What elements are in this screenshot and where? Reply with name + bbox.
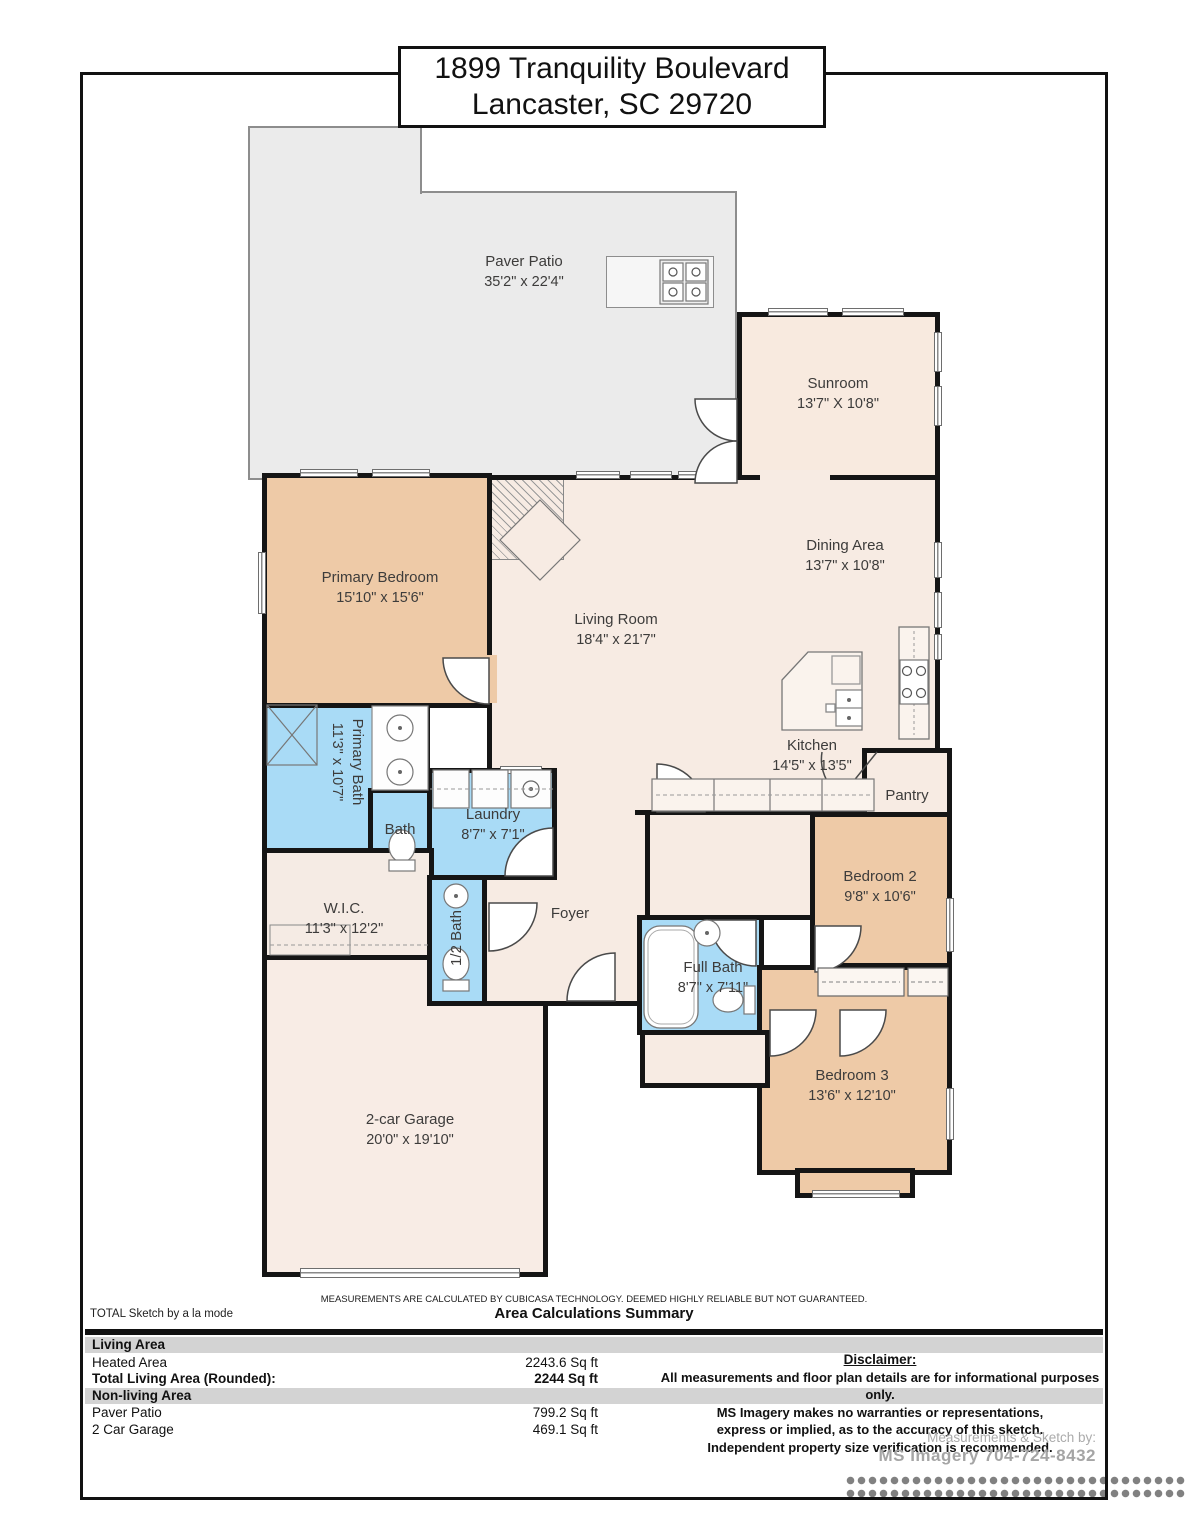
row-label: Total Living Area (Rounded): [92,1371,276,1387]
room-label-half-bath: 1/2 Bath [447,910,467,966]
window [300,469,358,477]
room-label-dining: Dining Area13'7" x 10'8" [805,536,885,576]
room-label-living: Living Room18'4" x 21'7" [574,610,657,650]
disclaimer-title: Disclaimer: [655,1351,1105,1369]
window [678,471,723,479]
window [946,1088,954,1140]
window [842,308,904,316]
disclaimer-line: All measurements and floor plan details … [655,1369,1105,1404]
room-pantry [862,748,952,817]
row-label: 2 Car Garage [92,1422,174,1438]
window [258,552,266,614]
room-label-sunroom: Sunroom13'7" X 10'8" [797,374,879,414]
window [934,332,942,372]
window [576,471,620,479]
window [934,542,942,578]
room-label-kitchen: Kitchen14'5" x 13'5" [772,736,852,776]
entry-porch [640,1030,770,1088]
row-value: 469.1 Sq ft [398,1422,598,1438]
window [768,308,828,316]
credit-name: MS Imagery 704-724-8432 [878,1446,1096,1466]
summary-title: Area Calculations Summary [85,1305,1103,1322]
grill-table [606,256,714,308]
window [934,634,942,660]
room-label-full-bath: Full Bath8'7" x 7'11" [678,958,748,998]
room-label-primary-bath: Primary Bath11'3" x 10'7" [327,719,367,806]
room-label-laundry: Laundry8'7" x 7'1" [461,805,524,845]
row-label: Heated Area [92,1355,167,1371]
room-hall [645,810,815,920]
room-paver-patio [248,126,422,480]
room-label-bedroom-3: Bedroom 313'6" x 12'10" [808,1066,896,1106]
room-label-paver-patio: Paver Patio35'2" x 22'4" [484,252,564,292]
window [934,386,942,426]
floor-plan-page: Paver Patio35'2" x 22'4" Sunroom13'7" X … [0,0,1187,1536]
row-value: 2243.6 Sq ft [398,1355,598,1371]
room-label-bedroom-2: Bedroom 29'8" x 10'6" [843,867,916,907]
row-label: Paver Patio [92,1405,162,1421]
credit-label: Measurements & Sketch by: [927,1430,1096,1445]
room-label-bath: Bath [385,820,416,840]
window [812,1190,900,1198]
address-title-box: 1899 Tranquility Boulevard Lancaster, SC… [398,46,826,128]
window [500,766,542,774]
stairs-hatch [492,480,564,560]
garage-door [300,1268,520,1278]
address-line-2: Lancaster, SC 29720 [401,87,823,123]
measurement-note: MEASUREMENTS ARE CALCULATED BY CUBICASA … [85,1294,1103,1305]
room-paver-patio [420,191,737,480]
disclaimer-line: MS Imagery makes no warranties or repres… [655,1404,1105,1422]
room-label-garage: 2-car Garage20'0" x 19'10" [366,1110,454,1150]
window [946,898,954,952]
divider-bar [85,1329,1103,1335]
window [934,592,942,628]
window [372,469,430,477]
row-value: 2244 Sq ft [398,1371,598,1387]
room-label-foyer: Foyer [551,904,589,924]
address-line-1: 1899 Tranquility Boulevard [401,51,823,87]
window [630,471,672,479]
row-value: 799.2 Sq ft [398,1405,598,1421]
room-label-wic: W.I.C.11'3" x 12'2" [305,899,383,939]
room-label-primary-bedroom: Primary Bedroom15'10" x 15'6" [322,568,439,608]
room-label-pantry: Pantry [885,786,928,806]
